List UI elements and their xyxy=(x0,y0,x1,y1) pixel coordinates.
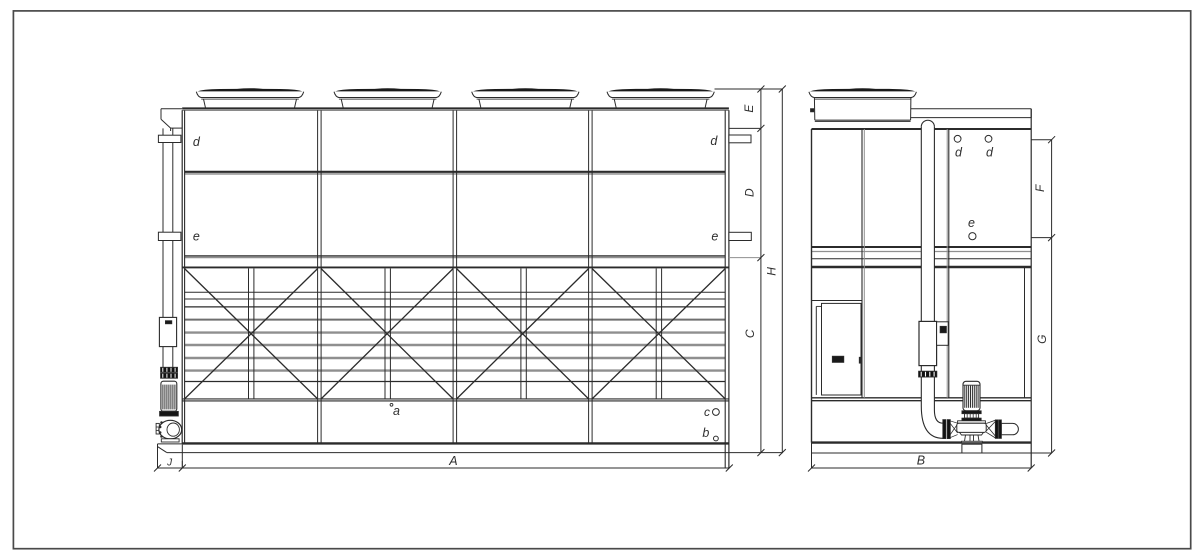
svg-text:e: e xyxy=(193,230,200,244)
svg-text:b: b xyxy=(702,426,709,440)
svg-text:e: e xyxy=(711,230,718,244)
svg-text:H: H xyxy=(765,267,779,276)
svg-text:d: d xyxy=(710,134,718,148)
svg-text:E: E xyxy=(742,104,756,113)
svg-text:e: e xyxy=(968,216,975,230)
svg-text:J: J xyxy=(166,457,173,468)
svg-text:a: a xyxy=(393,404,400,418)
svg-text:d: d xyxy=(986,146,994,160)
svg-text:A: A xyxy=(448,454,457,468)
svg-text:d: d xyxy=(193,135,201,149)
svg-text:G: G xyxy=(1035,335,1049,344)
svg-text:c: c xyxy=(704,405,710,419)
svg-text:d: d xyxy=(955,146,963,160)
svg-text:B: B xyxy=(917,454,925,468)
svg-text:D: D xyxy=(742,188,756,197)
svg-text:C: C xyxy=(743,329,757,338)
svg-text:F: F xyxy=(1033,184,1047,192)
